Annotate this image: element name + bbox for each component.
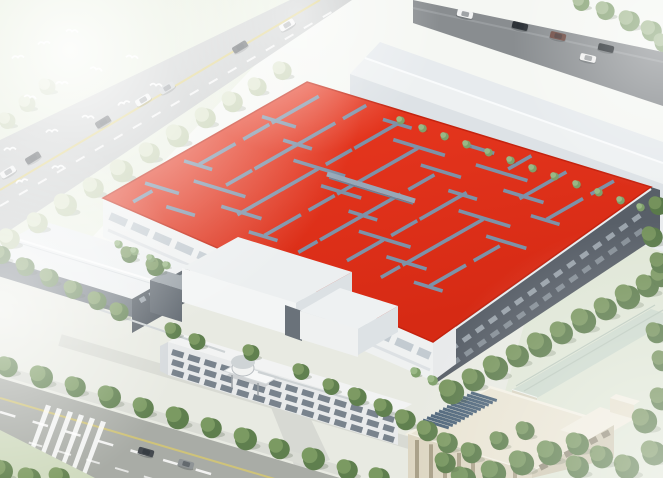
- scene-svg: [0, 0, 663, 478]
- aerial-rendering-of-factory-campus: [0, 0, 663, 478]
- fog-top-right: [0, 0, 663, 478]
